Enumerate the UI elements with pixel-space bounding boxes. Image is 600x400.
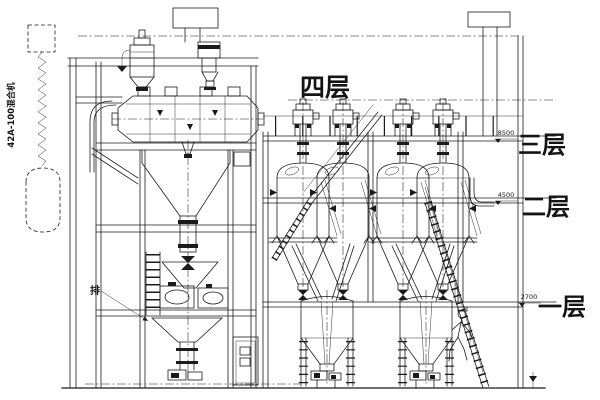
elevation-floor2-value: 4500	[498, 191, 515, 199]
discharge-annotation-group: 排	[90, 284, 148, 321]
tower-frame	[96, 62, 256, 388]
floor1-label: 一层	[538, 293, 586, 321]
stair-upper	[272, 105, 382, 261]
control-cabinet	[233, 337, 258, 385]
tank-3	[370, 99, 441, 300]
main-hopper	[142, 150, 250, 270]
floor3-label: 三层	[518, 131, 566, 159]
left-equipment-annotation: 42A-100混合机	[6, 82, 17, 148]
discharge-annotation: 排	[90, 284, 100, 297]
stair-ground	[425, 187, 489, 388]
elevation-floor3-value: 8500	[498, 129, 515, 137]
floor4-label: 四层	[300, 73, 350, 102]
top-feeder	[173, 8, 220, 90]
packing-bins	[301, 290, 452, 388]
elevation-floor1-value: 2700	[521, 293, 538, 301]
elevation-drawing: 四层 三层 二层 一层 8500 4500 2700 42A-100混合机 排	[0, 0, 600, 400]
floor2-label: 二层	[522, 193, 570, 221]
bin-1	[301, 290, 353, 388]
hoist-assembly	[26, 25, 60, 232]
dust-collector	[117, 30, 154, 91]
lower-hopper	[152, 318, 222, 380]
storage-tanks	[270, 99, 481, 300]
cad-drawing-canvas: 四层 三层 二层 一层 8500 4500 2700 42A-100混合机 排	[0, 0, 600, 400]
right-structure	[263, 12, 556, 388]
left-frame	[68, 58, 258, 388]
bin-2	[400, 290, 452, 388]
ground-level-symbol	[529, 372, 537, 388]
